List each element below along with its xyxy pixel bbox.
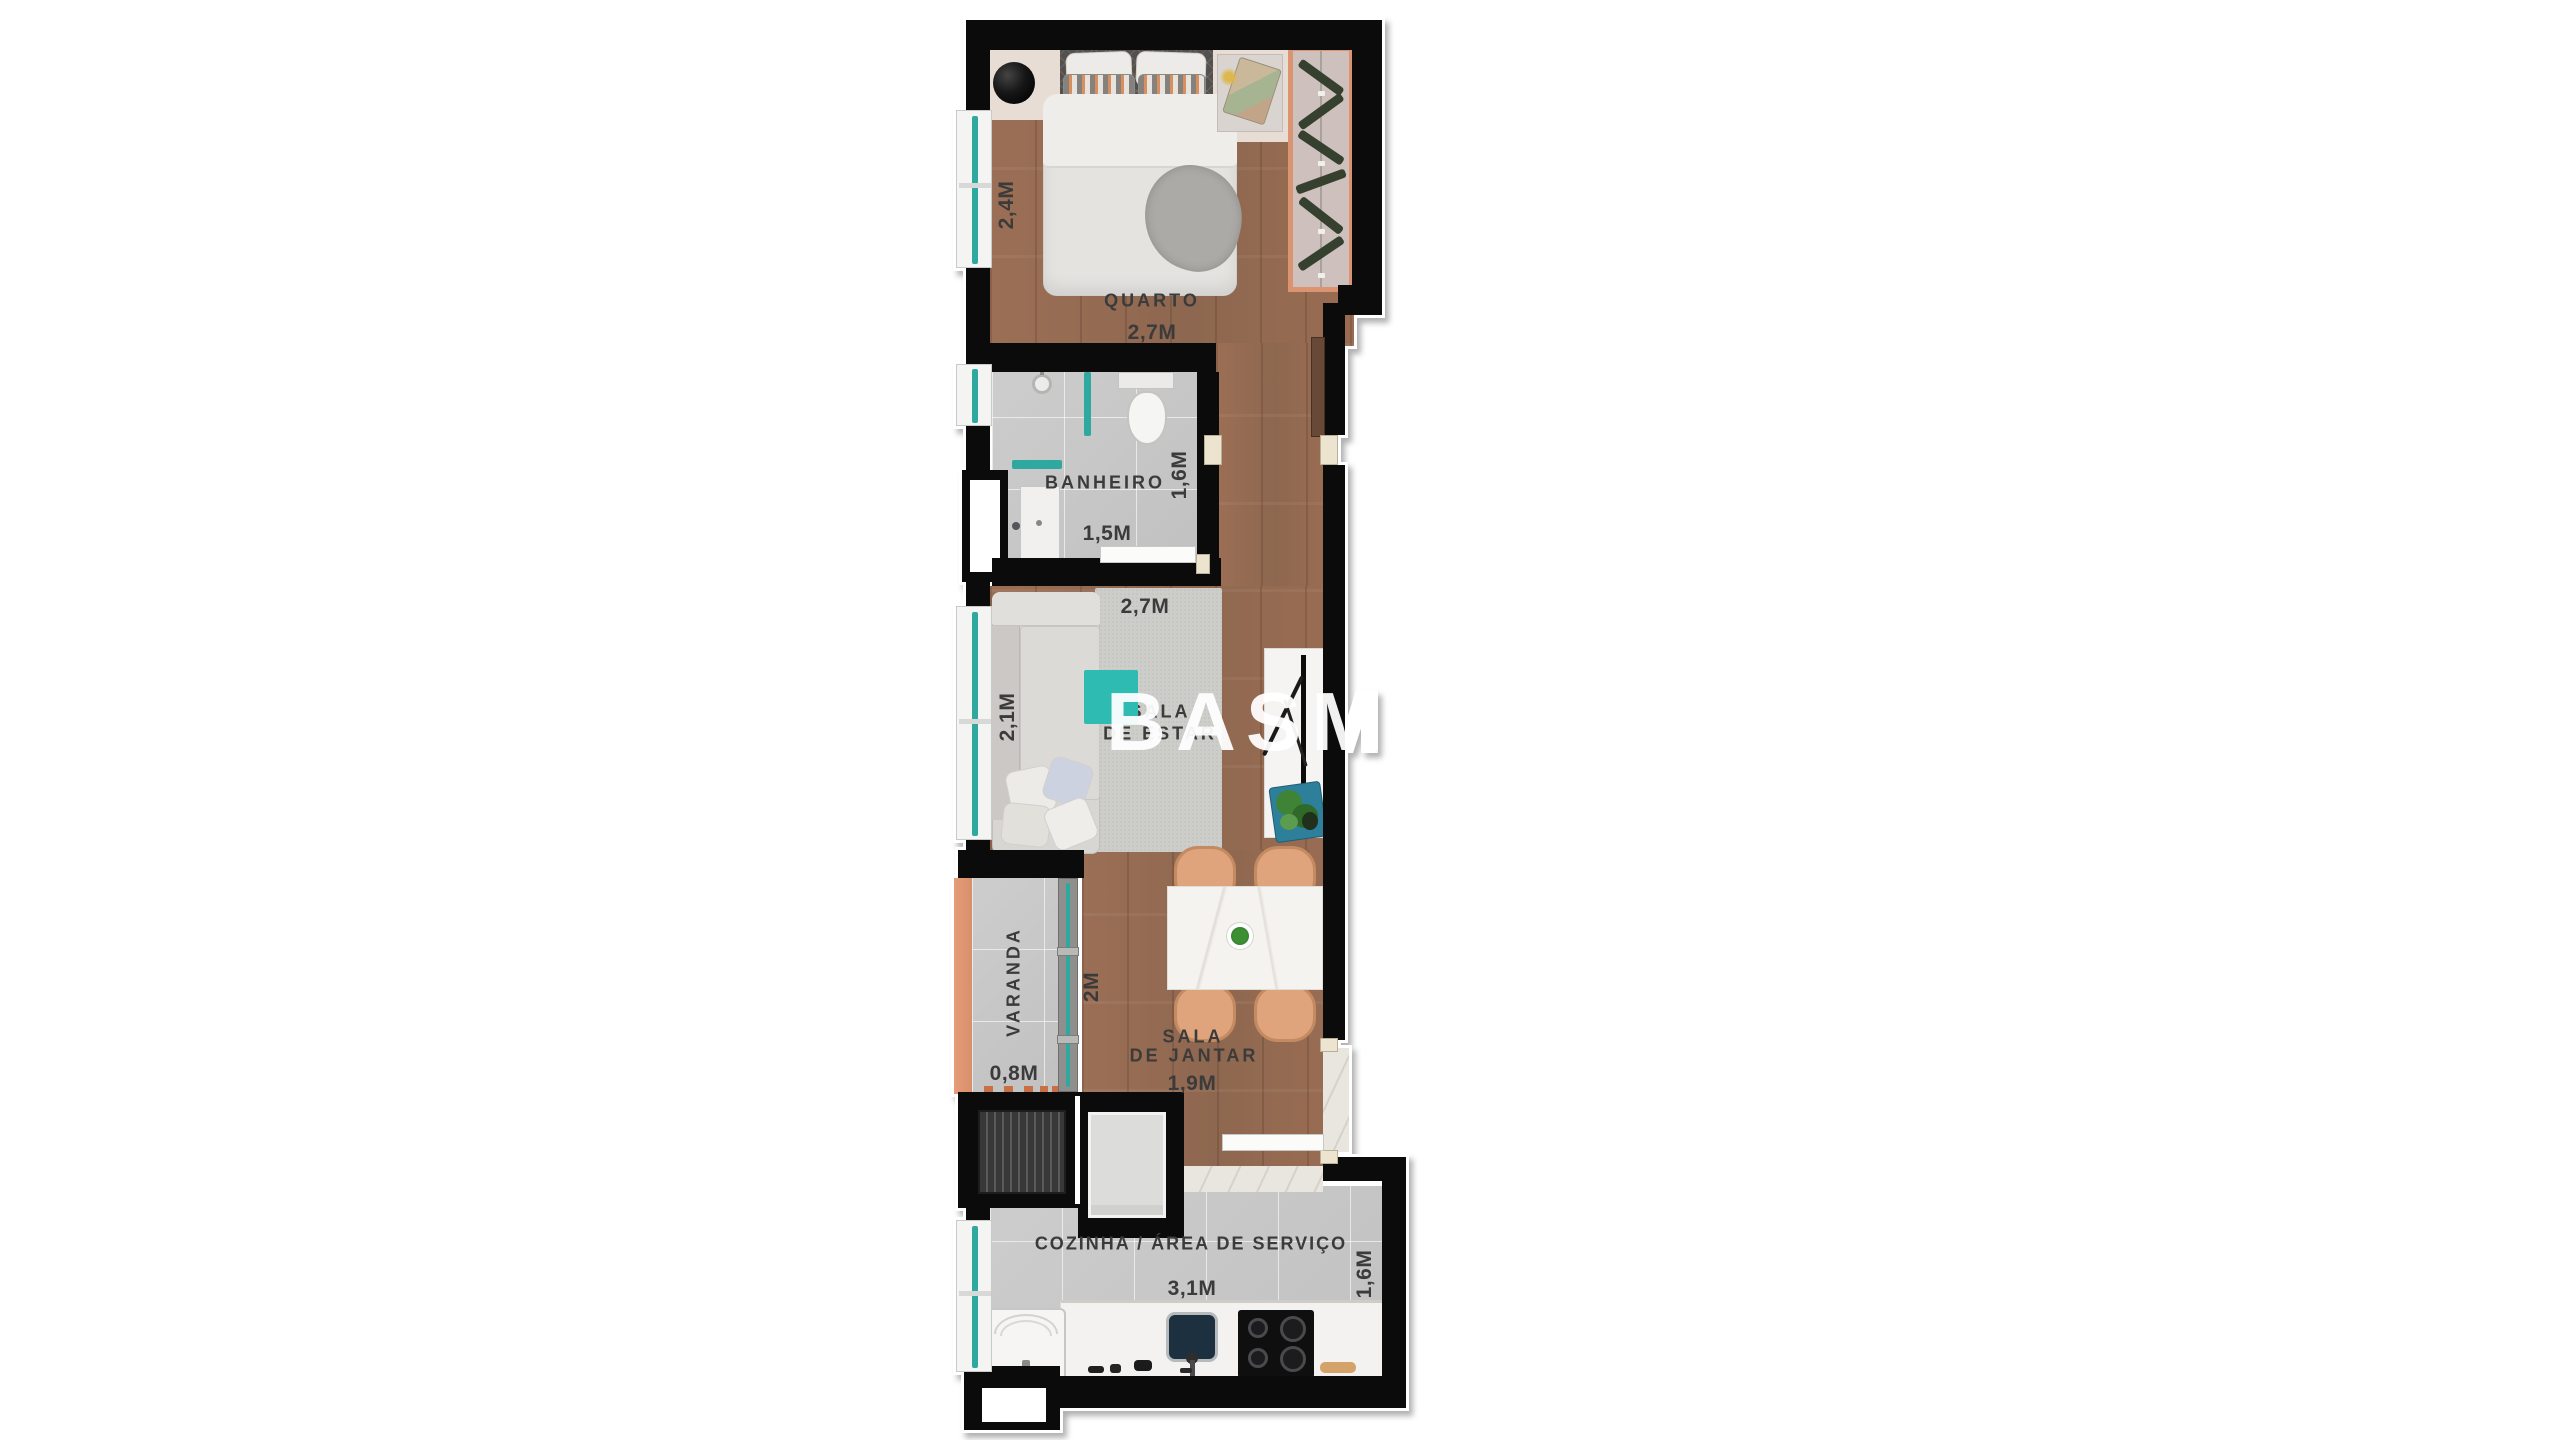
room-label-quarto: QUARTO [1104, 291, 1200, 312]
counter-utensil [1180, 1368, 1192, 1373]
floor-plan: QUARTO 2,7M 2,4M BANHEIRO 1,5M 1,6M 2,7M… [950, 8, 1416, 1436]
door-jamb [1320, 435, 1338, 465]
door-jamb [1320, 1150, 1338, 1164]
bathroom-window [956, 364, 992, 426]
bathroom-door-leaf [1100, 546, 1196, 563]
niche-divider [1075, 1096, 1080, 1204]
room-label-sala-jantar-line1: SALA [1163, 1027, 1224, 1048]
door-jamb [1196, 554, 1210, 574]
dim-quarto-width: 2,7M [1128, 321, 1177, 345]
hallway-floor [1216, 343, 1323, 593]
sofa-armrest [992, 592, 1100, 626]
console-plant [1280, 814, 1298, 830]
dim-banheiro-width: 1,5M [1083, 522, 1132, 546]
door-jamb [1320, 1038, 1338, 1052]
room-label-varanda: VARANDA [1004, 927, 1025, 1037]
window-mullion [959, 1291, 991, 1296]
bedroom-window [956, 110, 992, 268]
sliding-door-handle [1057, 1035, 1079, 1044]
bed-sheet-fold [1043, 94, 1237, 168]
counter-utensil [1088, 1366, 1104, 1373]
room-label-cozinha: COZINHA / ÁREA DE SERVIÇO [1035, 1234, 1347, 1255]
entry-threshold [1323, 1048, 1349, 1152]
side-table [993, 62, 1035, 104]
cooktop-burner [1280, 1316, 1306, 1342]
wardrobe [1288, 46, 1354, 292]
sliding-door-glass [1066, 883, 1070, 1087]
dining-chair [1254, 984, 1316, 1042]
kitchen-threshold [1182, 1166, 1323, 1192]
counter-utensil [1110, 1364, 1121, 1373]
shower-glass-panel [1084, 372, 1091, 436]
shower-head [1032, 374, 1052, 394]
window-glass [972, 369, 978, 423]
cutting-board [1320, 1362, 1356, 1373]
cooktop-burner [1248, 1318, 1268, 1338]
wall [966, 343, 1216, 372]
dim-banheiro-depth: 1,6M [1168, 451, 1192, 500]
window-glass [972, 1226, 978, 1368]
room-label-banheiro: BANHEIRO [1045, 473, 1165, 494]
kitchen-window [956, 1220, 992, 1372]
bedroom-door-leaf [1311, 337, 1325, 437]
cooktop-burner [1280, 1346, 1306, 1372]
hanger-clip [1318, 273, 1325, 278]
cooktop-burner [1248, 1348, 1268, 1368]
ac-condenser-unit [978, 1110, 1066, 1194]
wall [1323, 303, 1345, 435]
window-glass [972, 116, 978, 264]
flower-decor [1220, 68, 1238, 86]
wall [966, 20, 1382, 50]
dim-sala-estar-width: 2,7M [1121, 595, 1170, 619]
varanda-edge [954, 878, 972, 1094]
dim-cozinha-width: 3,1M [1168, 1277, 1217, 1301]
window-mullion [959, 719, 991, 724]
sliding-door-handle [1057, 947, 1079, 956]
hanger-clip [1318, 161, 1325, 166]
dim-varanda-width: 0,8M [990, 1062, 1039, 1086]
hanger-clip [1318, 91, 1325, 96]
wall [1382, 1180, 1406, 1408]
wall [966, 20, 990, 112]
hanger-clip [1318, 229, 1325, 234]
wall [958, 850, 1084, 878]
console-decor-bowl [1302, 812, 1318, 830]
wall [966, 423, 990, 472]
window-glass [972, 612, 978, 836]
vanity-knob [1036, 520, 1042, 526]
watermark-text: BASM [1106, 680, 1390, 763]
bathroom-shelf [1012, 460, 1062, 469]
room-label-sala-jantar-line2: DE JANTAR [1130, 1046, 1259, 1067]
vanity-faucet [1012, 522, 1020, 530]
counter-utensil [1134, 1360, 1152, 1371]
fridge [1088, 1112, 1166, 1218]
entry-door-leaf [1222, 1134, 1324, 1151]
dim-quarto-depth: 2,4M [995, 181, 1019, 230]
living-room-window [956, 606, 992, 840]
varanda-sliding-door [1058, 878, 1078, 1092]
service-shaft-opening [982, 1388, 1046, 1422]
table-centerpiece-plant [1231, 927, 1249, 945]
toilet-tank [1118, 372, 1174, 389]
dim-sala-estar-depth: 2,1M [996, 693, 1020, 742]
dim-sala-jantar-width: 1,9M [1168, 1072, 1217, 1096]
dim-cozinha-depth: 1,6M [1353, 1250, 1377, 1299]
wall [1352, 20, 1382, 307]
sofa-pillow [1000, 802, 1052, 849]
dim-varanda-door: 2M [1080, 972, 1104, 1002]
wall [1197, 372, 1219, 564]
window-mullion [959, 183, 991, 188]
door-jamb [1204, 435, 1222, 465]
toilet-bowl [1127, 391, 1167, 445]
